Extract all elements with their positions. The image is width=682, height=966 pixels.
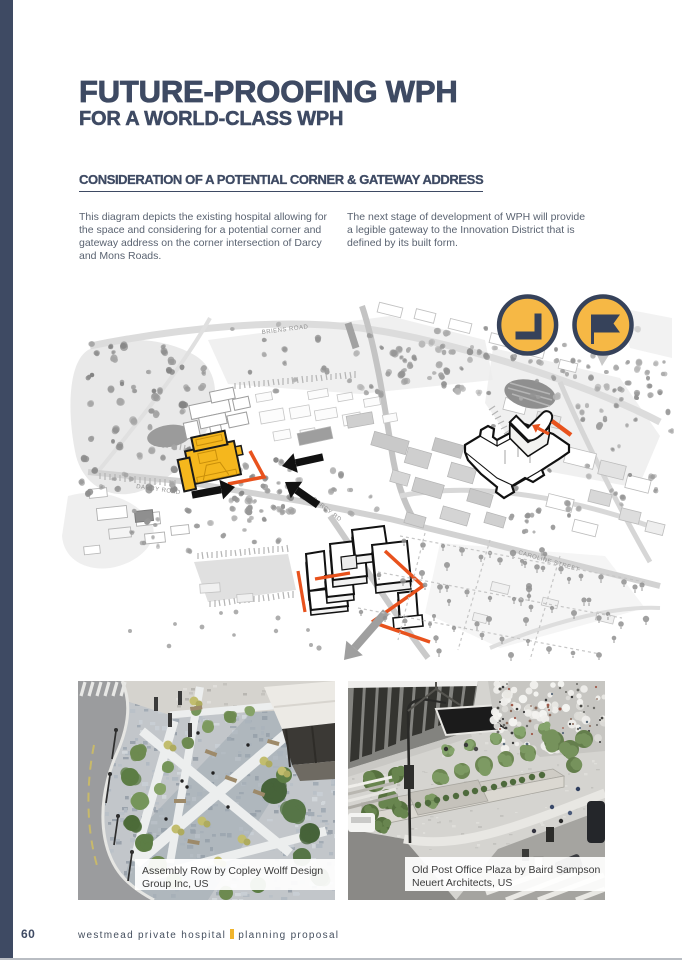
svg-text:Neuert Architects, US: Neuert Architects, US xyxy=(412,877,512,889)
svg-text:Group Inc, US: Group Inc, US xyxy=(142,878,209,890)
svg-text:Old Post Office Plaza by Baird: Old Post Office Plaza by Baird Sampson xyxy=(412,864,600,876)
svg-text:Assembly Row by Copley Wolff D: Assembly Row by Copley Wolff Design xyxy=(142,865,323,877)
